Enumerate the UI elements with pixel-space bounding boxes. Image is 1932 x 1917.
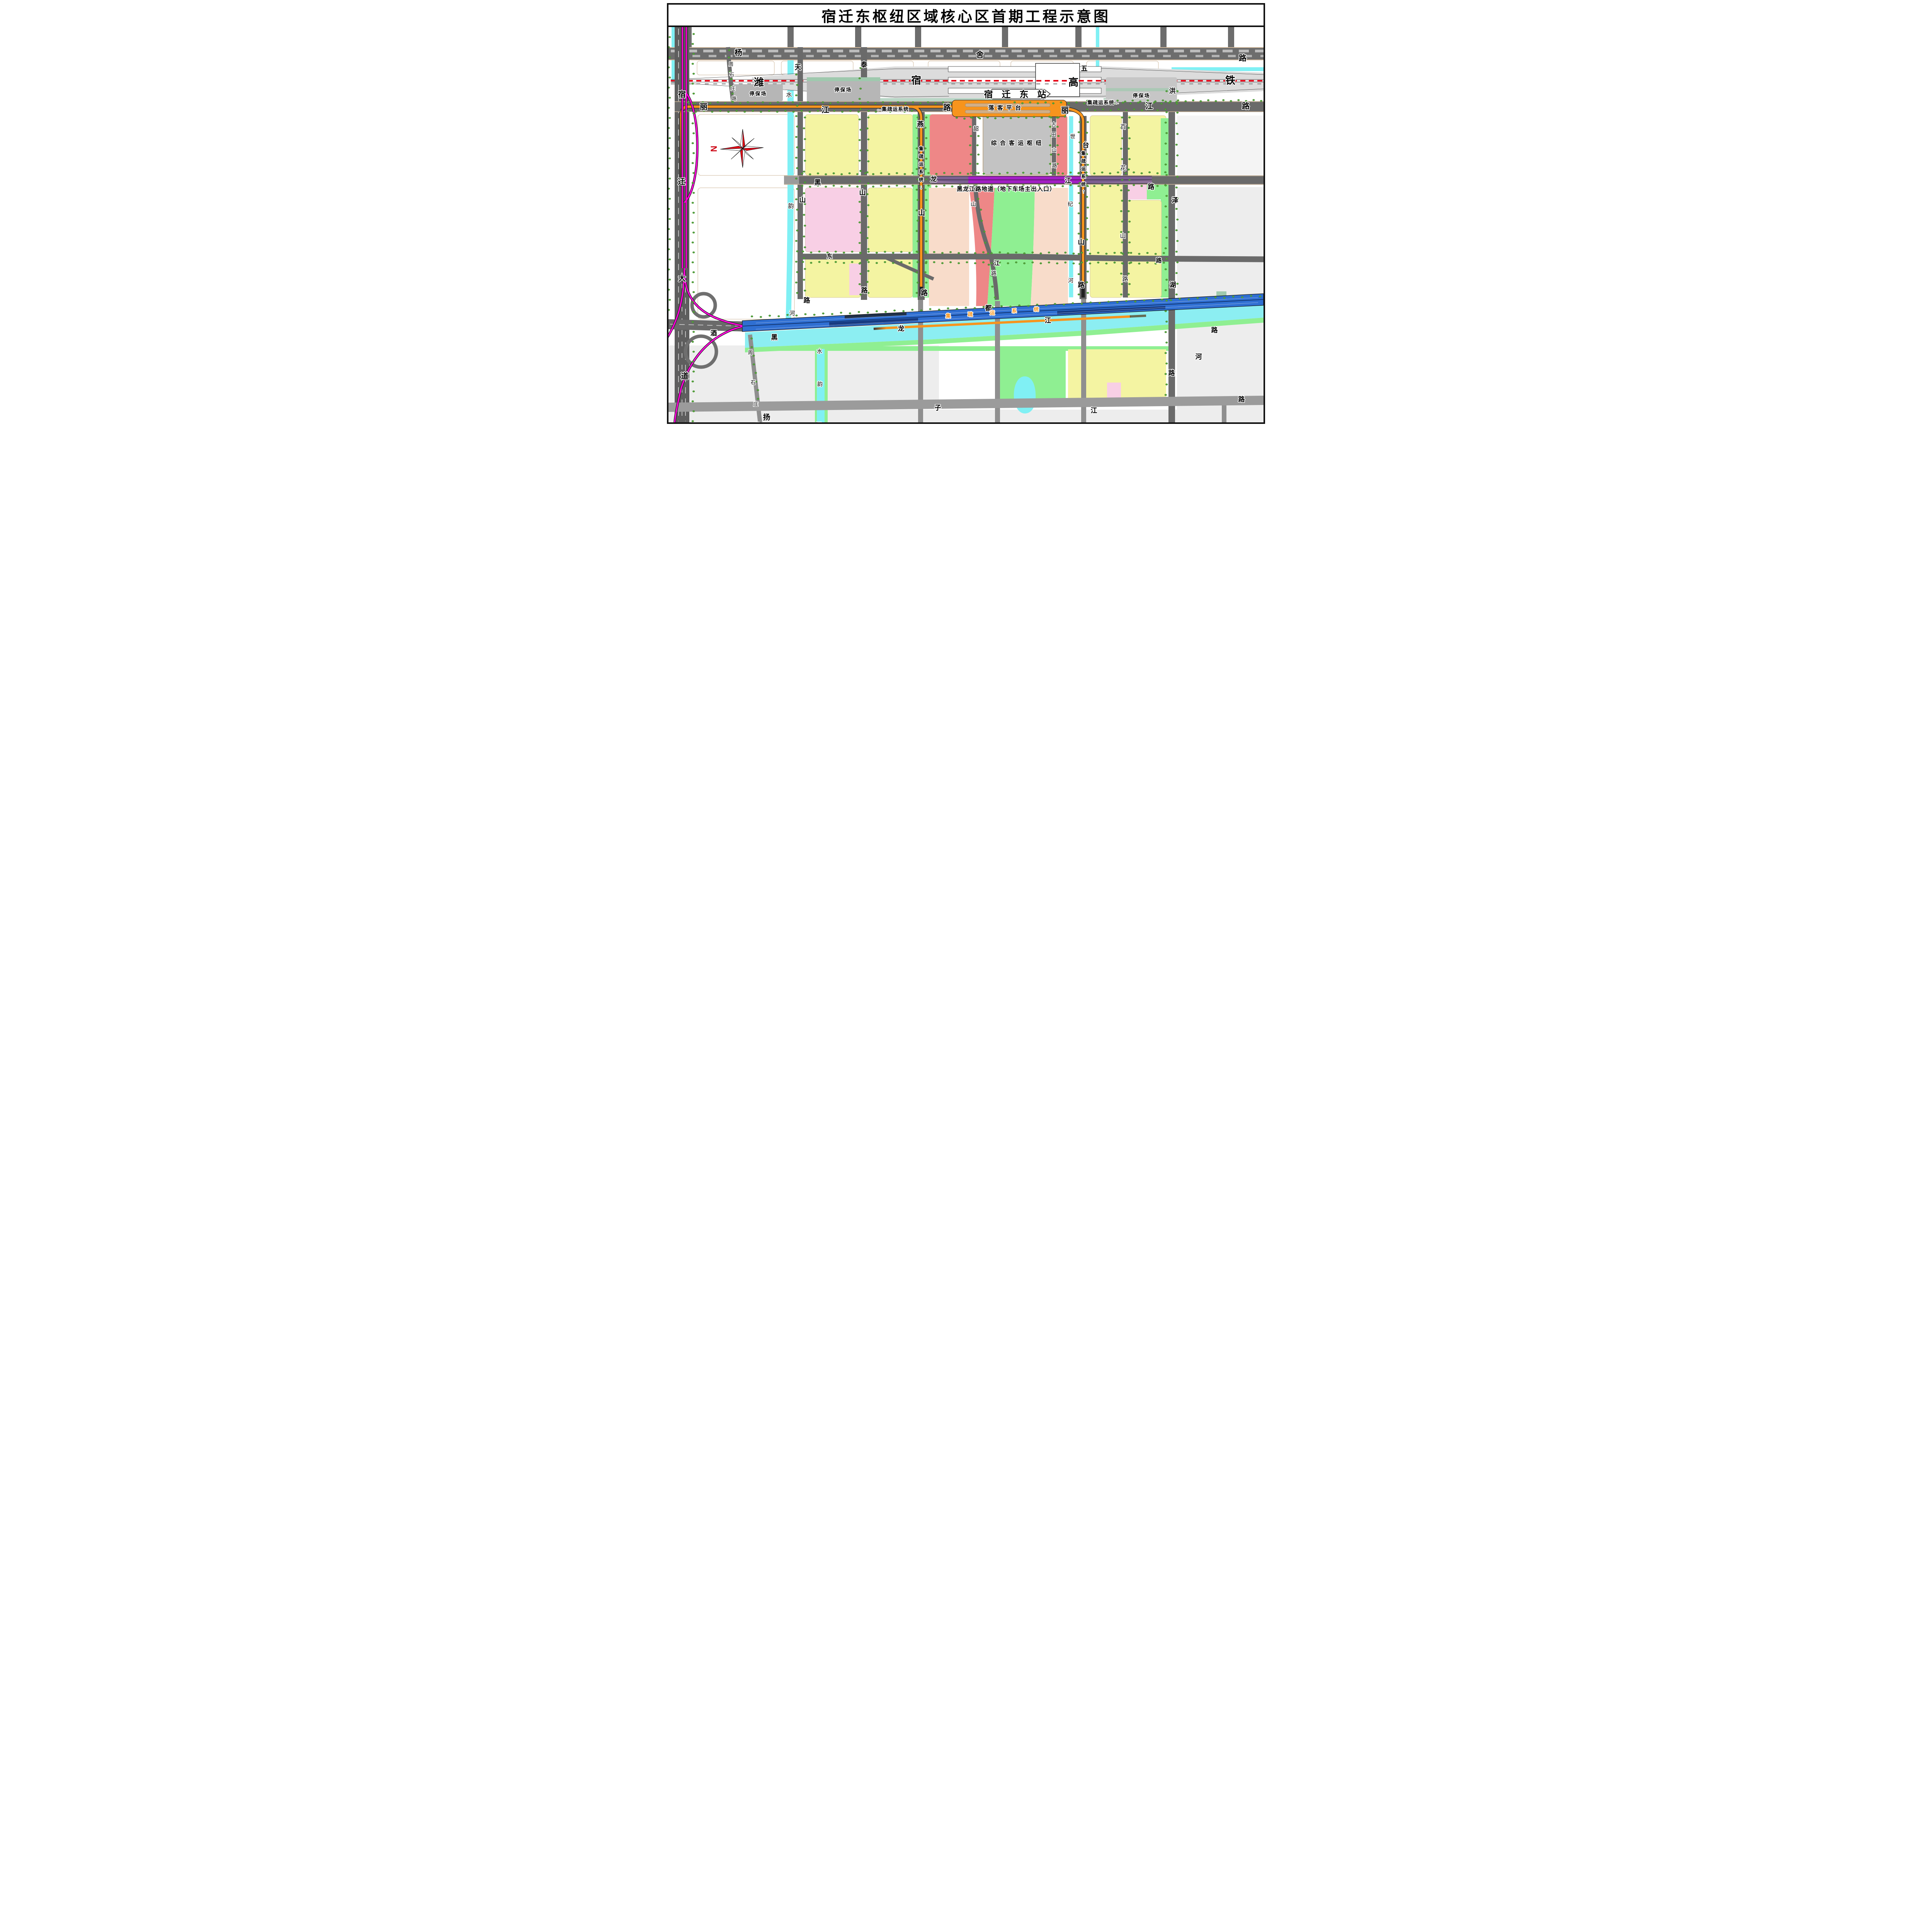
- tree-icon: [1253, 99, 1255, 101]
- tree-icon: [796, 188, 798, 190]
- tree-icon: [730, 78, 733, 80]
- label-jsy-blue-2: 疏: [968, 311, 973, 317]
- label-suqiandadao-2: 迁: [678, 177, 685, 186]
- tree-icon: [1130, 252, 1132, 253]
- tree-icon: [866, 128, 869, 129]
- tree-icon: [1165, 132, 1168, 134]
- tree-icon: [1017, 116, 1020, 118]
- tree-icon: [804, 117, 806, 118]
- label-lijiang-e1: 丽: [1061, 106, 1069, 115]
- tree-icon: [1170, 299, 1172, 301]
- tree-icon: [1081, 303, 1083, 304]
- tree-icon: [825, 173, 827, 175]
- tree-icon: [692, 162, 694, 164]
- label-depot-2: 停保场: [834, 87, 852, 93]
- label-gutianshan-4: 路: [1052, 163, 1057, 168]
- tree-icon: [935, 173, 938, 175]
- tree-icon: [982, 252, 985, 253]
- tree-icon: [810, 262, 812, 264]
- label-railway-su: 宿: [911, 75, 921, 86]
- tree-icon: [859, 211, 862, 213]
- tree-icon: [943, 172, 946, 173]
- tree-icon: [987, 253, 989, 254]
- tree-icon: [974, 252, 976, 254]
- tree-icon: [795, 74, 798, 75]
- tree-icon: [668, 238, 671, 240]
- tree-icon: [917, 117, 919, 118]
- label-jsy-wutai-5: 统: [1081, 181, 1086, 187]
- tree-icon: [1078, 182, 1081, 184]
- tree-icon: [1021, 102, 1024, 104]
- tree-icon: [1120, 148, 1122, 150]
- tree-icon: [1050, 172, 1052, 174]
- tree-icon: [1165, 363, 1168, 364]
- label-hongzehu-4: 路: [1168, 369, 1175, 377]
- tree-icon: [867, 160, 869, 162]
- tree-icon: [1175, 208, 1178, 209]
- tree-icon: [1121, 138, 1123, 139]
- tree-icon: [668, 137, 671, 139]
- tree-icon: [867, 110, 870, 112]
- tree-icon: [859, 201, 861, 202]
- label-wutaishan-2: 台: [1083, 141, 1089, 149]
- tree-icon: [739, 102, 742, 104]
- tree-icon: [1230, 100, 1232, 102]
- tree-icon: [692, 202, 694, 204]
- tree-icon: [927, 185, 930, 186]
- tree-icon: [1165, 237, 1168, 238]
- tree-icon: [807, 102, 809, 103]
- tree-icon: [900, 251, 903, 253]
- tree-icon: [1102, 109, 1104, 110]
- label-lijiang-3: 路: [943, 103, 951, 112]
- label-baihuashan-3: 山: [1120, 233, 1126, 239]
- tree-icon: [769, 315, 771, 316]
- tree-icon: [750, 338, 753, 339]
- tree-icon: [933, 261, 935, 263]
- tree-icon: [917, 261, 919, 263]
- tree-icon: [1128, 294, 1130, 295]
- tree-icon: [692, 351, 695, 352]
- label-suqiandadao-4: 道: [681, 371, 689, 381]
- tree-icon: [1038, 172, 1040, 173]
- tree-icon: [1121, 221, 1123, 222]
- tree-icon: [1078, 152, 1080, 153]
- tree-icon: [692, 63, 694, 65]
- label-zhoushizhuang-n2: 石: [730, 72, 734, 77]
- tree-icon: [668, 168, 670, 169]
- tree-icon: [912, 185, 914, 186]
- tree-icon: [1041, 117, 1043, 119]
- label-suqiandadao-3: 大: [678, 274, 686, 283]
- tree-icon: [1083, 102, 1085, 104]
- label-suqiandadao-1: 宿: [678, 90, 686, 99]
- label-yangzijiang-3: 江: [1091, 407, 1097, 414]
- tree-icon: [1165, 206, 1167, 207]
- tree-icon: [969, 145, 971, 146]
- tree-icon: [876, 262, 878, 264]
- tree-icon: [1143, 299, 1145, 301]
- label-shaoshan-3: 路: [991, 270, 997, 276]
- label-tunnel-note: 黑龙江路地道（地下车场主出入口）: [957, 185, 1056, 192]
- tree-icon: [728, 57, 730, 58]
- tree-icon: [1175, 272, 1178, 274]
- tree-icon: [762, 102, 764, 103]
- tree-icon: [1160, 103, 1163, 104]
- tree-icon: [1089, 263, 1091, 264]
- tree-icon: [970, 154, 972, 155]
- tree-icon: [916, 189, 918, 191]
- tree-icon: [1052, 102, 1054, 104]
- tree-icon: [1165, 174, 1168, 176]
- tree-icon: [692, 291, 695, 293]
- tree-icon: [736, 110, 738, 112]
- tree-icon: [753, 364, 755, 365]
- tree-icon: [867, 139, 869, 140]
- tree-icon: [970, 117, 972, 118]
- label-river-2: 龙: [898, 325, 905, 332]
- tree-icon: [1165, 384, 1168, 385]
- tree-icon: [1141, 172, 1143, 174]
- label-lijiang-2: 江: [821, 105, 829, 114]
- tree-icon: [1128, 252, 1130, 253]
- tree-icon: [977, 154, 980, 155]
- label-wutaishan-3: 山: [1078, 238, 1085, 246]
- tree-icon: [1109, 185, 1111, 187]
- tree-icon: [1101, 184, 1104, 186]
- tree-icon: [1176, 90, 1179, 92]
- tree-icon: [867, 117, 869, 118]
- tree-icon: [1044, 102, 1047, 103]
- tree-icon: [793, 111, 795, 112]
- label-station-1: 宿: [984, 89, 993, 99]
- tree-icon: [904, 185, 906, 187]
- tree-icon: [897, 102, 899, 103]
- tree-icon: [1165, 216, 1168, 218]
- tree-icon: [796, 250, 798, 252]
- tree-icon: [1062, 185, 1064, 187]
- label-jsy-wutai-arrow: ↑: [1082, 188, 1085, 194]
- tree-icon: [1050, 117, 1052, 118]
- tree-icon: [1121, 200, 1123, 201]
- label-jsy-wutai-4: 系: [1081, 173, 1086, 179]
- tree-icon: [1128, 117, 1131, 118]
- tree-icon: [1075, 102, 1078, 103]
- label-gutianshan-3: 山: [1051, 147, 1056, 153]
- tree-icon: [1077, 185, 1080, 187]
- tree-icon: [925, 261, 927, 263]
- tree-icon: [692, 122, 694, 124]
- tree-icon: [1121, 262, 1123, 264]
- tree-icon: [984, 242, 986, 243]
- tree-icon: [857, 111, 860, 112]
- tree-icon: [1120, 189, 1122, 191]
- tree-icon: [859, 108, 862, 110]
- tree-icon: [880, 185, 883, 186]
- tree-icon: [1014, 102, 1016, 103]
- tree-icon: [825, 186, 827, 187]
- tree-icon: [1107, 301, 1110, 303]
- tree-icon: [751, 346, 753, 348]
- tree-icon: [916, 251, 918, 252]
- tree-icon: [760, 316, 762, 318]
- tree-icon: [692, 410, 695, 412]
- label-shaoshan-1: 韶: [973, 126, 979, 132]
- tree-icon: [692, 192, 695, 194]
- tree-icon: [908, 252, 911, 253]
- tree-icon: [1063, 304, 1065, 305]
- tree-icon: [1037, 102, 1039, 104]
- label-depot-1: 停保场: [749, 91, 767, 97]
- tree-icon: [1046, 173, 1048, 174]
- tree-icon: [731, 93, 734, 94]
- tree-icon: [900, 261, 903, 263]
- label-station-2: 迁: [1002, 89, 1011, 99]
- tree-icon: [1161, 299, 1163, 300]
- tree-icon: [859, 129, 862, 131]
- label-taishan-2: 山: [859, 189, 866, 196]
- tree-icon: [1175, 187, 1178, 188]
- label-shijihe-2: 纪: [1068, 201, 1073, 207]
- tree-icon: [837, 102, 839, 103]
- tree-icon: [833, 172, 835, 174]
- tree-icon: [1125, 300, 1128, 302]
- tree-icon: [795, 115, 798, 117]
- tree-icon: [692, 391, 695, 392]
- tree-icon: [859, 242, 861, 244]
- tree-icon: [893, 310, 896, 311]
- label-gutianshan-2: 田: [1051, 132, 1056, 138]
- tree-icon: [941, 252, 944, 254]
- tree-icon: [692, 242, 694, 243]
- tree-icon: [864, 185, 867, 186]
- tree-icon: [668, 208, 670, 209]
- tree-icon: [1165, 279, 1168, 281]
- tree-icon: [799, 102, 802, 104]
- tree-icon: [1078, 131, 1080, 133]
- tree-icon: [1175, 251, 1178, 252]
- tree-icon: [1048, 252, 1050, 253]
- tree-icon: [864, 172, 867, 174]
- tree-icon: [1065, 262, 1067, 263]
- tree-icon: [976, 145, 979, 146]
- tree-icon: [1175, 101, 1178, 103]
- tree-icon: [687, 110, 689, 112]
- tree-icon: [804, 247, 806, 248]
- tree-icon: [843, 262, 845, 264]
- tree-icon: [1128, 148, 1130, 150]
- tree-icon: [1133, 172, 1135, 173]
- tree-icon: [801, 173, 803, 174]
- tree-icon: [872, 186, 874, 187]
- tree-icon: [809, 111, 811, 112]
- tree-icon: [668, 56, 671, 58]
- label-jsy-blue-4: 系: [1012, 308, 1017, 314]
- tree-icon: [896, 185, 898, 186]
- tree-icon: [1078, 273, 1080, 275]
- tree-icon: [795, 219, 798, 221]
- tree-icon: [866, 259, 869, 261]
- label-taishan-1: 泰: [861, 61, 868, 68]
- tree-icon: [719, 110, 721, 112]
- tree-icon: [916, 271, 918, 273]
- tree-icon: [1165, 247, 1167, 249]
- tree-icon: [792, 102, 794, 103]
- tree-icon: [867, 204, 869, 206]
- tree-icon: [1010, 117, 1012, 119]
- tree-icon: [965, 307, 967, 308]
- tree-icon: [1165, 185, 1167, 186]
- tree-icon: [924, 189, 927, 191]
- tree-icon: [1176, 155, 1179, 156]
- tree-icon: [1259, 296, 1261, 297]
- tree-icon: [833, 110, 835, 112]
- tree-icon: [1120, 294, 1122, 295]
- tree-icon: [1117, 172, 1119, 173]
- tree-icon: [1072, 303, 1074, 304]
- tree-icon: [1033, 116, 1035, 118]
- label-wutaishan-4: 路: [1078, 281, 1085, 289]
- tree-icon: [754, 102, 757, 104]
- tree-icon: [668, 66, 670, 68]
- tree-icon: [844, 102, 847, 104]
- compass-north-letter: N: [709, 146, 719, 152]
- label-dongjiang-3: 路: [1156, 257, 1162, 264]
- tree-icon: [1241, 296, 1243, 298]
- tree-icon: [859, 119, 861, 120]
- tree-icon: [1086, 196, 1088, 197]
- tree-icon: [692, 381, 694, 382]
- tree-icon: [668, 117, 671, 119]
- tree-icon: [1176, 240, 1179, 242]
- label-zhoushizhuang-s4: 路: [755, 422, 760, 422]
- tree-icon: [757, 398, 759, 400]
- tree-icon: [951, 173, 954, 175]
- tree-icon: [1081, 262, 1083, 263]
- tree-icon: [991, 286, 993, 287]
- label-shuiyunhe-s2: 韵: [817, 381, 823, 387]
- tree-icon: [992, 306, 994, 308]
- tree-icon: [859, 77, 861, 79]
- tree-icon: [1165, 111, 1168, 113]
- tree-icon: [927, 172, 930, 174]
- tree-icon: [668, 299, 671, 301]
- tree-icon: [1128, 179, 1131, 180]
- tree-icon: [920, 310, 923, 311]
- tree-icon: [1049, 145, 1051, 146]
- label-lijiang-e3: 路: [1242, 101, 1250, 111]
- tree-icon: [668, 248, 670, 250]
- tree-icon: [1121, 179, 1123, 180]
- tree-icon: [859, 232, 862, 233]
- tree-icon: [1114, 252, 1116, 253]
- tree-icon: [1176, 103, 1178, 104]
- tree-icon: [938, 309, 940, 310]
- tree-icon: [1222, 99, 1225, 101]
- tree-icon: [851, 251, 854, 252]
- tree-icon: [866, 172, 869, 173]
- tree-icon: [959, 172, 961, 173]
- tree-icon: [856, 186, 859, 187]
- map-frame: 宿迁东枢纽区域核心区首期工程示意图: [667, 3, 1265, 424]
- label-hongzehu-3: 湖: [1170, 281, 1176, 289]
- tree-icon: [1049, 163, 1051, 165]
- tree-icon: [1086, 132, 1088, 133]
- tree-icon: [990, 252, 993, 254]
- tree-icon: [1086, 239, 1088, 240]
- tree-icon: [1175, 230, 1178, 231]
- tree-icon: [1073, 263, 1075, 264]
- pond: [1014, 376, 1036, 413]
- tree-icon: [1057, 117, 1060, 118]
- label-jsy-west: ←集疏运系统: [876, 106, 909, 112]
- tree-icon: [859, 88, 862, 89]
- label-shuiyunhe-s1: 水: [817, 348, 822, 354]
- tree-icon: [692, 112, 695, 114]
- tree-icon: [917, 240, 919, 242]
- tree-icon: [1086, 153, 1088, 155]
- tree-icon: [1124, 101, 1126, 102]
- tree-icon: [1056, 262, 1058, 264]
- label-jsy-yan-5: 统: [919, 177, 923, 182]
- tree-icon: [795, 240, 798, 242]
- tree-icon: [858, 311, 860, 313]
- label-shuiyunhe-n1: 水: [786, 92, 792, 98]
- label-jsy-blue-5: 统: [1034, 306, 1039, 312]
- tree-icon: [958, 252, 960, 254]
- tree-icon: [876, 252, 878, 253]
- tree-icon: [947, 308, 949, 309]
- label-jsy-wutai-1: 集: [1081, 150, 1086, 156]
- label-yangshe-2: 舍: [976, 50, 984, 59]
- tree-icon: [1176, 262, 1179, 263]
- tree-icon: [692, 133, 695, 134]
- tree-icon: [896, 172, 898, 174]
- tree-icon: [1164, 109, 1167, 110]
- tree-icon: [1093, 185, 1095, 187]
- tree-icon: [859, 252, 862, 254]
- label-railway-wei: 潍: [754, 77, 764, 88]
- tree-icon: [795, 282, 798, 283]
- tree-icon: [1175, 122, 1178, 124]
- tree-icon: [1078, 172, 1080, 173]
- tree-icon: [692, 33, 695, 35]
- tree-icon: [835, 251, 837, 252]
- tree-icon: [916, 230, 918, 232]
- tree-icon: [966, 262, 968, 263]
- tree-icon: [927, 102, 929, 103]
- tree-icon: [916, 168, 918, 170]
- tree-icon: [866, 193, 869, 195]
- tree-icon: [727, 111, 730, 112]
- tree-icon: [925, 158, 927, 160]
- tree-icon: [1175, 294, 1178, 295]
- tree-icon: [692, 103, 694, 104]
- tree-icon: [668, 36, 671, 38]
- tree-icon: [867, 312, 869, 313]
- tree-icon: [1128, 210, 1130, 212]
- tree-icon: [1232, 296, 1235, 297]
- tree-icon: [796, 84, 798, 86]
- label-baihuashan-2: 花: [1120, 165, 1126, 172]
- tree-icon: [1121, 117, 1123, 118]
- tree-icon: [911, 110, 913, 112]
- tree-icon: [1014, 173, 1017, 174]
- tree-icon: [1105, 263, 1108, 264]
- tree-icon: [1023, 253, 1026, 254]
- tree-icon: [933, 251, 935, 253]
- tree-icon: [1188, 299, 1190, 300]
